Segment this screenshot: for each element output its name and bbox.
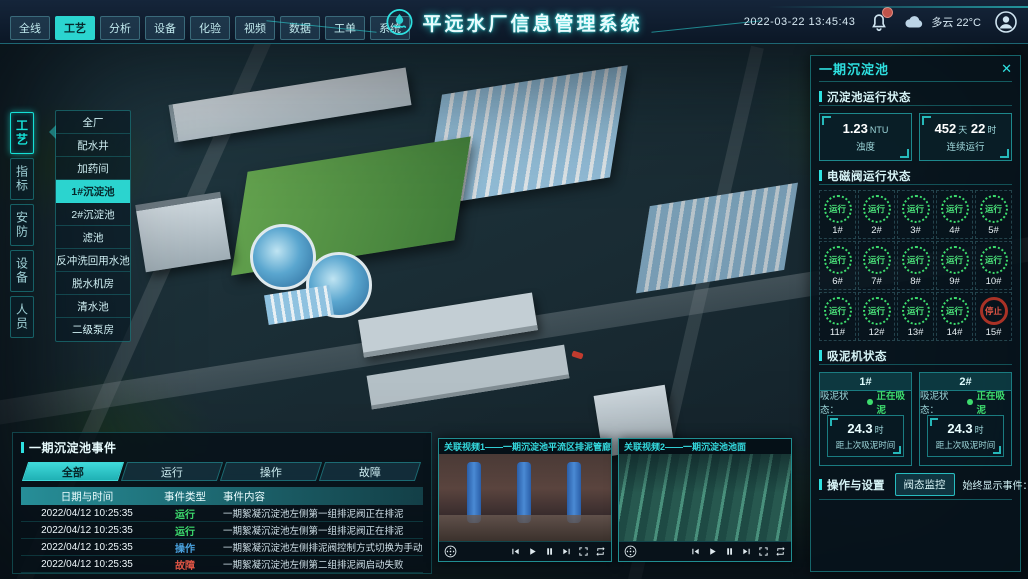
valve-2: 运行2# [858, 190, 895, 239]
valve-4: 运行4# [936, 190, 973, 239]
events-panel-title: 一期沉淀池事件 [21, 439, 423, 455]
pause-icon[interactable] [724, 546, 735, 557]
video-2-title: 关联视频2——一期沉淀池池面 [619, 439, 791, 454]
next-icon[interactable] [741, 546, 752, 557]
uptime-hours-unit: 时 [987, 125, 996, 135]
play-icon[interactable] [527, 546, 538, 557]
uptime-days-unit: 天 [958, 125, 967, 135]
turbidity-card: 1.23NTU 浊度 [819, 113, 912, 161]
cloud-icon [903, 11, 925, 33]
next-icon[interactable] [561, 546, 572, 557]
status-dot [867, 399, 872, 405]
event-type: 运行 [153, 523, 217, 538]
events-tabs: 全部 运行 操作 故障 [25, 462, 423, 481]
video-1-title: 关联视频1——一期沉淀池平流区排泥管廊 [439, 439, 611, 454]
event-time: 2022/04/12 10:25:35 [21, 525, 153, 536]
top-bar-right: 2022-03-22 13:45:43 多云 22°C [744, 0, 1018, 44]
mud-status-label: 吸泥状态： [820, 388, 863, 416]
submenu-item-jiayaojian[interactable]: 加药间 [56, 157, 130, 180]
event-type: 操作 [153, 540, 217, 555]
valve-6: 运行6# [819, 241, 856, 290]
event-type: 故障 [153, 557, 217, 572]
event-time: 2022/04/12 10:25:35 [21, 508, 153, 519]
video-1-feed[interactable] [439, 454, 611, 541]
close-icon[interactable]: ✕ [1001, 62, 1012, 75]
submenu-item-fanchongxi[interactable]: 反冲洗回用水池 [56, 249, 130, 272]
brand: 平远水厂信息管理系统 [266, 0, 761, 44]
show-events-label: 始终显示事件： [963, 477, 1028, 492]
fullscreen-icon[interactable] [578, 546, 589, 557]
mud-time-card: 24.3时 距上次吸泥时间 [827, 415, 904, 457]
submenu-item-lvchi[interactable]: 滤池 [56, 226, 130, 249]
weather-label: 多云 22°C [931, 14, 981, 30]
nav-tab-huayan[interactable]: 化验 [190, 16, 230, 40]
submenu-item-tuoshuijifang[interactable]: 脱水机房 [56, 272, 130, 295]
valve-grid: 运行1# 运行2# 运行3# 运行4# 运行5# 运行6# 运行7# 运行8# … [819, 190, 1012, 341]
video-pump [517, 462, 531, 523]
user-avatar-icon[interactable] [994, 10, 1018, 34]
loop-icon[interactable] [775, 546, 786, 557]
video-floor [439, 515, 611, 541]
submenu-item-erjibengfang[interactable]: 二级泵房 [56, 318, 130, 341]
event-time: 2022/04/12 10:25:35 [21, 542, 153, 553]
notification-badge [882, 7, 893, 18]
video-panel-1: 关联视频1——一期沉淀池平流区排泥管廊 [438, 438, 612, 562]
dashboard: 全线 工艺 分析 设备 化验 视频 数据 工单 系统 平远水厂信息管理系统 20… [0, 0, 1028, 579]
pan-control-icon[interactable] [624, 545, 637, 558]
process-submenu: 全厂 配水井 加药间 1#沉淀池 2#沉淀池 滤池 反冲洗回用水池 脱水机房 清… [55, 110, 131, 342]
valve-8: 运行8# [897, 241, 934, 290]
event-type: 运行 [153, 506, 217, 521]
video-pump [567, 462, 581, 523]
page-title: 平远水厂信息管理系统 [422, 9, 642, 36]
section-valves: 电磁阀运行状态 [819, 167, 1012, 185]
valve-3: 运行3# [897, 190, 934, 239]
submenu-item-2-chendianchi[interactable]: 2#沉淀池 [56, 203, 130, 226]
event-time: 2022/04/12 10:25:35 [21, 559, 153, 570]
uptime-label: 连续运行 [946, 139, 984, 153]
nav-tab-shebei[interactable]: 设备 [145, 16, 185, 40]
status-dot [967, 399, 972, 405]
top-bar: 全线 工艺 分析 设备 化验 视频 数据 工单 系统 平远水厂信息管理系统 20… [0, 0, 1028, 44]
table-row[interactable]: 2022/04/12 10:25:35 故障 一期絮凝沉淀池左侧第二组排泥阀启动… [21, 556, 423, 573]
pause-icon[interactable] [544, 546, 555, 557]
loop-icon[interactable] [595, 546, 606, 557]
events-panel: 一期沉淀池事件 全部 运行 操作 故障 日期与时间 事件类型 事件内容 2022… [12, 432, 432, 574]
uptime-days: 452 [935, 121, 957, 136]
event-content: 一期絮凝沉淀池左侧第一组排泥阀正在排泥 [217, 523, 423, 537]
nav-tab-fenxi[interactable]: 分析 [100, 16, 140, 40]
table-row[interactable]: 2022/04/12 10:25:35 运行 一期絮凝沉淀池左侧第一组排泥阀正在… [21, 505, 423, 522]
left-tab-zhibiao[interactable]: 指标 [10, 158, 34, 200]
uptime-hours: 22 [971, 121, 985, 136]
valve-9: 运行9# [936, 241, 973, 290]
events-table-header: 日期与时间 事件类型 事件内容 [21, 487, 423, 505]
section-run-status: 沉淀池运行状态 [819, 88, 1012, 106]
video-2-controls [619, 541, 791, 561]
events-tab-running[interactable]: 运行 [121, 462, 223, 481]
notification-bell-icon[interactable] [868, 11, 890, 33]
detail-panel: 一期沉淀池 ✕ 沉淀池运行状态 1.23NTU 浊度 452天 22时 连续运行… [810, 55, 1021, 572]
brand-decoration [266, 11, 376, 33]
valve-monitor-button[interactable]: 阀态监控 [895, 473, 955, 496]
valve-7: 运行7# [858, 241, 895, 290]
submenu-item-qingshuichi[interactable]: 清水池 [56, 295, 130, 318]
detail-panel-title: 一期沉淀池 [819, 59, 889, 78]
mud-machine-1: 1# 吸泥状态： 正在吸泥 24.3时 距上次吸泥时间 [819, 372, 912, 466]
mud-status-value: 正在吸泥 [877, 388, 911, 416]
submenu-item-1-chendianchi[interactable]: 1#沉淀池 [56, 180, 130, 203]
valve-12: 运行12# [858, 292, 895, 341]
mud-time-card: 24.3时 距上次吸泥时间 [927, 415, 1004, 457]
prev-icon[interactable] [690, 546, 701, 557]
map-pool [264, 285, 334, 325]
left-tab-bar: 工艺 指标 安防 设备 人员 [10, 112, 34, 338]
app-logo-icon [385, 8, 413, 36]
map-building [135, 192, 231, 273]
events-tab-operation[interactable]: 操作 [220, 462, 322, 481]
left-tab-gongyi[interactable]: 工艺 [10, 112, 34, 154]
section-mud-machines: 吸泥机状态 [819, 347, 1012, 365]
valve-1: 运行1# [819, 190, 856, 239]
valve-10: 运行10# [975, 241, 1012, 290]
events-tab-fault[interactable]: 故障 [319, 462, 421, 481]
left-tab-shebei[interactable]: 设备 [10, 250, 34, 292]
video-pump [467, 462, 481, 523]
mud-status-value: 正在吸泥 [977, 388, 1011, 416]
video-1-controls [439, 541, 611, 561]
mud-status-label: 吸泥状态： [920, 388, 963, 416]
table-row[interactable]: 2022/04/12 10:25:35 运行 一期絮凝沉淀池左侧第一组排泥阀正在… [21, 522, 423, 539]
submenu-item-peishuijing[interactable]: 配水井 [56, 134, 130, 157]
left-tab-anfang[interactable]: 安防 [10, 204, 34, 246]
play-icon[interactable] [707, 546, 718, 557]
event-content: 一期絮凝沉淀池左侧排泥阀控制方式切换为手动 [217, 540, 423, 554]
video-panel-2: 关联视频2——一期沉淀池池面 [618, 438, 792, 562]
map-car [571, 350, 583, 359]
fullscreen-icon[interactable] [758, 546, 769, 557]
uptime-card: 452天 22时 连续运行 [919, 113, 1012, 161]
valve-13: 运行13# [897, 292, 934, 341]
turbidity-unit: NTU [870, 125, 889, 135]
submenu-item-quanchang[interactable]: 全厂 [56, 111, 130, 134]
events-tab-all[interactable]: 全部 [22, 462, 124, 481]
map-building [169, 67, 412, 142]
valve-15: 停止15# [975, 292, 1012, 341]
weather-widget: 多云 22°C [903, 11, 981, 33]
event-content: 一期絮凝沉淀池左侧第二组排泥阀启动失败 [217, 557, 423, 571]
valve-14: 运行14# [936, 292, 973, 341]
turbidity-value: 1.23 [843, 121, 868, 136]
operations-title: 操作与设置 [827, 477, 885, 493]
left-tab-renyuan[interactable]: 人员 [10, 296, 34, 338]
datetime-label: 2022-03-22 13:45:43 [744, 16, 856, 28]
detail-panel-header: 一期沉淀池 ✕ [819, 56, 1012, 82]
nav-tab-quanxian[interactable]: 全线 [10, 16, 50, 40]
mud-machine-2: 2# 吸泥状态： 正在吸泥 24.3时 距上次吸泥时间 [919, 372, 1012, 466]
prev-icon[interactable] [510, 546, 521, 557]
event-content: 一期絮凝沉淀池左侧第一组排泥阀正在排泥 [217, 506, 423, 520]
nav-tab-gongyi[interactable]: 工艺 [55, 16, 95, 40]
turbidity-label: 浊度 [856, 139, 875, 153]
video-2-feed[interactable] [619, 454, 791, 541]
pan-control-icon[interactable] [444, 545, 457, 558]
section-operations: 操作与设置 阀态监控 始终显示事件： [819, 476, 1012, 500]
valve-5: 运行5# [975, 190, 1012, 239]
valve-11: 运行11# [819, 292, 856, 341]
run-status-cards: 1.23NTU 浊度 452天 22时 连续运行 [819, 113, 1012, 161]
mud-machine-cards: 1# 吸泥状态： 正在吸泥 24.3时 距上次吸泥时间 2# 吸泥状态： 正在吸… [819, 372, 1012, 466]
table-row[interactable]: 2022/04/12 10:25:35 操作 一期絮凝沉淀池左侧排泥阀控制方式切… [21, 539, 423, 556]
